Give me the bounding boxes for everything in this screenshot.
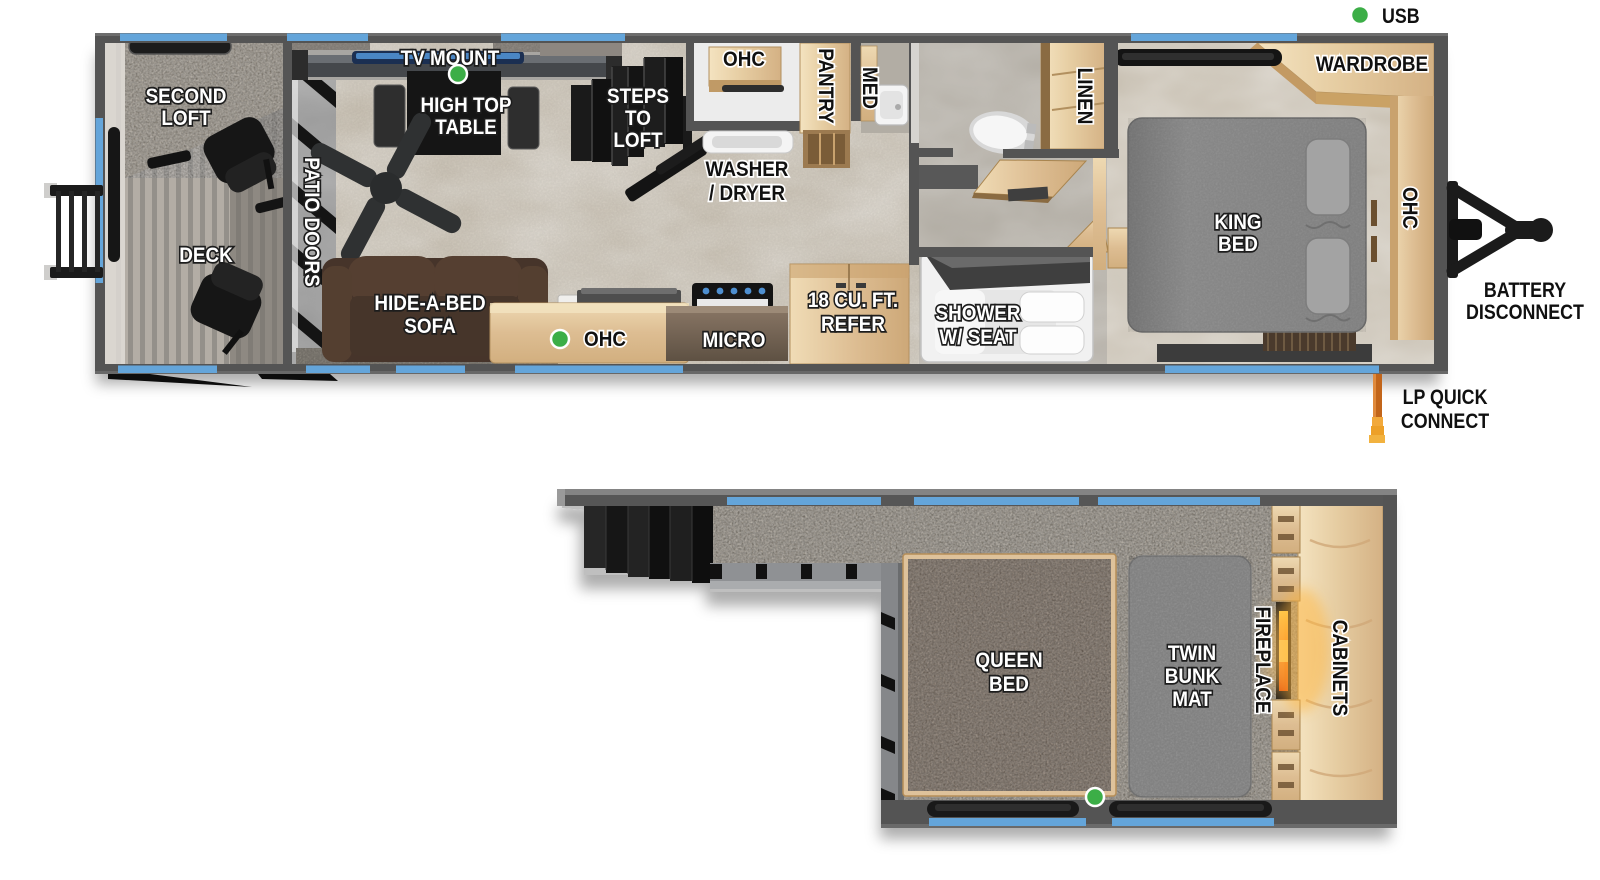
- svg-text:DECK: DECK: [179, 244, 233, 267]
- svg-text:BED: BED: [989, 673, 1029, 696]
- svg-text:OHC: OHC: [723, 48, 765, 71]
- svg-text:PATIO DOORS: PATIO DOORS: [300, 157, 323, 286]
- svg-text:CABINETS: CABINETS: [1328, 620, 1351, 717]
- svg-text:TABLE: TABLE: [435, 116, 497, 139]
- svg-text:FIREPLACE: FIREPLACE: [1251, 606, 1274, 713]
- svg-text:HIGH TOP: HIGH TOP: [421, 94, 512, 117]
- svg-text:BATTERY: BATTERY: [1484, 279, 1566, 303]
- svg-text:BUNK: BUNK: [1165, 665, 1220, 688]
- svg-text:HIDE-A-BED: HIDE-A-BED: [374, 292, 485, 315]
- svg-text:QUEEN: QUEEN: [975, 649, 1042, 672]
- svg-text:W/ SEAT: W/ SEAT: [939, 326, 1016, 349]
- svg-text:TV MOUNT: TV MOUNT: [401, 47, 500, 70]
- svg-text:MAT: MAT: [1172, 688, 1212, 711]
- svg-text:OHC: OHC: [584, 328, 626, 351]
- svg-text:SECOND: SECOND: [146, 85, 227, 108]
- svg-text:MICRO: MICRO: [703, 329, 766, 352]
- svg-text:USB: USB: [1382, 5, 1420, 29]
- svg-text:18 CU. FT.: 18 CU. FT.: [808, 289, 898, 312]
- svg-text:BED: BED: [1218, 233, 1258, 256]
- svg-text:LP QUICK: LP QUICK: [1403, 386, 1488, 410]
- svg-text:TWIN: TWIN: [1168, 642, 1216, 665]
- svg-text:LOFT: LOFT: [613, 129, 662, 152]
- svg-text:SHOWER: SHOWER: [935, 302, 1021, 325]
- svg-text:STEPS: STEPS: [607, 85, 669, 108]
- svg-text:PANTRY: PANTRY: [814, 48, 837, 124]
- svg-text:MED: MED: [858, 67, 881, 109]
- svg-text:WASHER: WASHER: [706, 158, 789, 181]
- svg-text:KING: KING: [1214, 211, 1261, 234]
- svg-text:CONNECT: CONNECT: [1401, 410, 1489, 434]
- svg-text:OHC: OHC: [1398, 187, 1421, 229]
- svg-text:LOFT: LOFT: [161, 107, 210, 130]
- svg-text:DISCONNECT: DISCONNECT: [1466, 301, 1584, 325]
- svg-text:SOFA: SOFA: [404, 315, 455, 338]
- svg-text:REFER: REFER: [821, 313, 886, 336]
- svg-text:/ DRYER: / DRYER: [709, 182, 785, 205]
- svg-text:WARDROBE: WARDROBE: [1316, 53, 1428, 76]
- svg-text:TO: TO: [625, 107, 651, 130]
- svg-text:LINEN: LINEN: [1073, 68, 1096, 125]
